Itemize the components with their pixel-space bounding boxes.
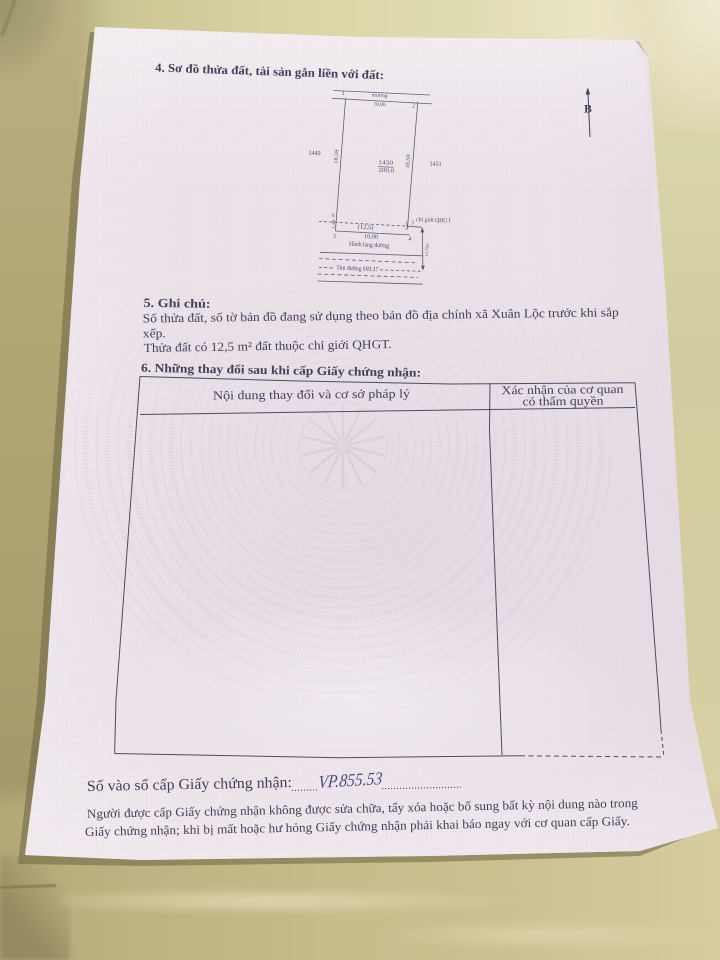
svg-text:xếp.: xếp. xyxy=(143,326,166,340)
svg-text:10,00: 10,00 xyxy=(373,102,386,109)
svg-text:5: 5 xyxy=(333,234,336,240)
svg-text:VP.855.53: VP.855.53 xyxy=(318,768,383,792)
svg-text:10,00: 10,00 xyxy=(364,234,378,241)
svg-text:mương: mương xyxy=(371,92,388,99)
svg-text:3: 3 xyxy=(411,220,414,226)
svg-text:(12,5): (12,5) xyxy=(357,224,373,232)
svg-text:4. Sơ đồ thửa đất, tài sản gắn: 4. Sơ đồ thửa đất, tài sản gắn liền với … xyxy=(155,61,384,83)
svg-text:6: 6 xyxy=(332,213,335,219)
svg-text:13,75m: 13,75m xyxy=(424,243,431,257)
svg-text:200,0: 200,0 xyxy=(378,168,394,175)
svg-text:4: 4 xyxy=(408,236,411,242)
svg-text:1450: 1450 xyxy=(378,160,393,167)
svg-text:1: 1 xyxy=(341,91,344,97)
svg-text:Số vào sổ cấp Giấy chứng nhận:: Số vào sổ cấp Giấy chứng nhận: xyxy=(87,774,292,795)
svg-text:2: 2 xyxy=(412,103,415,109)
svg-text:B: B xyxy=(584,104,592,116)
svg-text:chỉ giới QHGT: chỉ giới QHGT xyxy=(416,217,452,224)
svg-text:Nội dung thay đổi và cơ sở phá: Nội dung thay đổi và cơ sở pháp lý xyxy=(213,386,411,402)
svg-text:6. Những thay đổi sau khi cấp: 6. Những thay đổi sau khi cấp Giấy chứng… xyxy=(141,361,421,380)
svg-text:Hành lang đường: Hành lang đường xyxy=(349,241,390,250)
svg-text:có thẩm quyền: có thẩm quyền xyxy=(522,394,603,409)
svg-text:1451: 1451 xyxy=(429,161,441,168)
svg-text:Tim đường ĐH.37: Tim đường ĐH.37 xyxy=(336,264,379,273)
svg-text:5. Ghi chú:: 5. Ghi chú: xyxy=(143,296,210,311)
svg-text:Số thửa đất, số tờ bản đồ đang: Số thửa đất, số tờ bản đồ đang sử dụng t… xyxy=(143,305,619,325)
svg-text:18,50: 18,50 xyxy=(405,154,412,169)
svg-text:Thửa đất có 12,5 m² đất thuộc: Thửa đất có 12,5 m² đất thuộc chỉ giới Q… xyxy=(144,337,392,355)
svg-text:1449: 1449 xyxy=(308,150,320,157)
svg-text:18,59: 18,59 xyxy=(334,149,341,164)
